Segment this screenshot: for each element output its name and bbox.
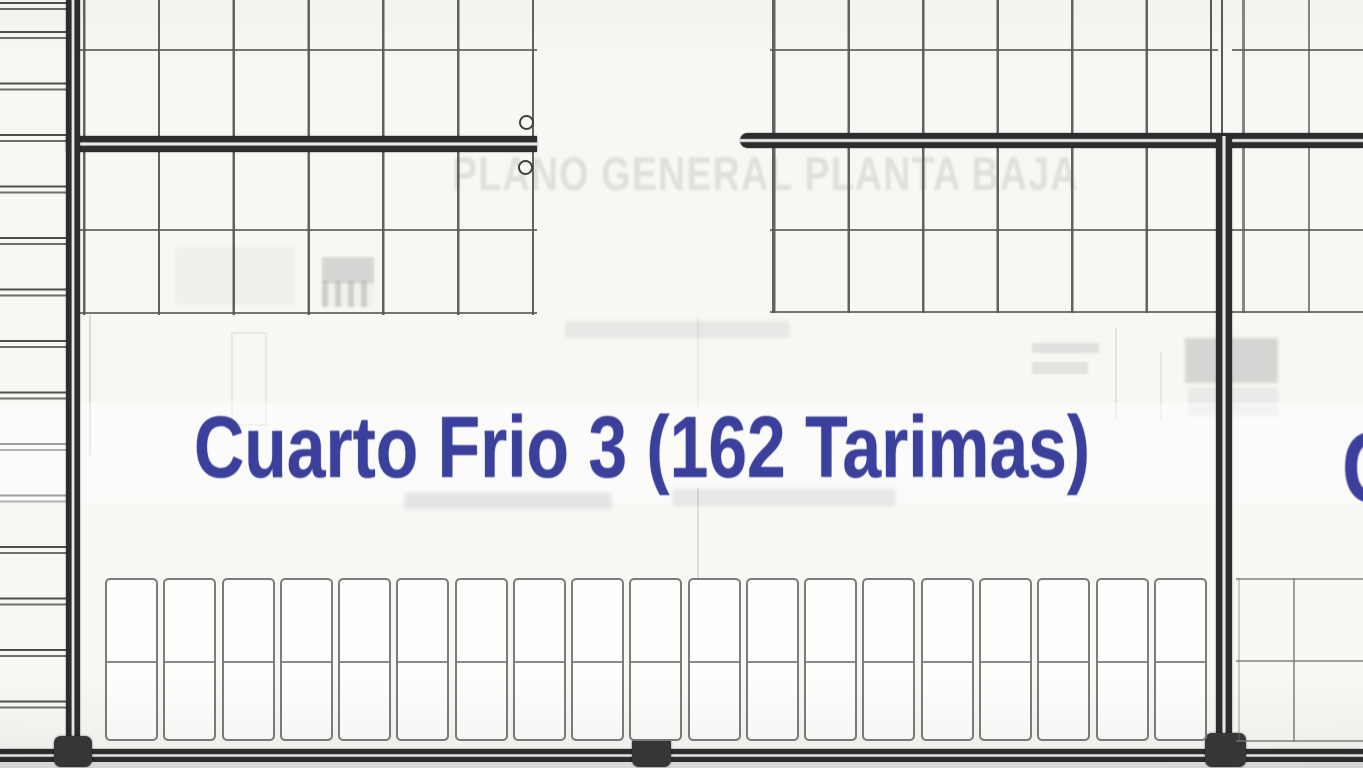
ghost-gray-block-2 — [1188, 387, 1278, 416]
pallet-cell — [629, 578, 682, 741]
ghost-line — [1160, 352, 1162, 420]
pallet-rack-top-right — [770, 0, 1218, 313]
pallet-cell — [746, 578, 799, 741]
ghost-text-small-1 — [1032, 343, 1099, 353]
rack-shelf-line — [1236, 660, 1363, 662]
door-hinge-marker-bottom — [518, 160, 533, 175]
pallet-rack-far-right — [1232, 0, 1363, 313]
pallet-cell — [1096, 578, 1149, 741]
rack-shelf-line — [770, 49, 1218, 51]
adjacent-room-partial-label: C — [1342, 411, 1363, 526]
ghost-text-mid — [565, 321, 790, 338]
rack-shelf-line — [80, 229, 537, 231]
left-rack-strip — [0, 0, 66, 750]
rack-shelf-line — [1236, 578, 1363, 580]
pallet-cell — [513, 578, 566, 741]
ghost-line — [697, 318, 699, 408]
wall-left — [66, 0, 80, 756]
rack-vertical-lines — [1232, 0, 1363, 313]
rack-vertical-line — [1238, 578, 1240, 742]
rack-vertical-lines — [770, 0, 1218, 313]
room-label: Cuarto Frio 3 (162 Tarimas) — [194, 398, 1090, 498]
rack-vertical-line — [1293, 578, 1295, 742]
ghost-line — [89, 315, 91, 455]
rack-bottom-edge — [1232, 311, 1363, 313]
ghost-text-small-2 — [1032, 362, 1088, 374]
pallet-cell — [396, 578, 449, 741]
pallet-cell — [921, 578, 974, 741]
rack-vertical-lines — [80, 0, 537, 315]
rack-bottom-edge — [80, 312, 537, 314]
pallet-cell — [455, 578, 508, 741]
rack-bottom-edge — [1236, 740, 1363, 742]
rack-shelf-line — [1232, 49, 1363, 51]
rack-bottom-edge — [770, 311, 1218, 313]
pallet-row-bottom-left — [105, 578, 1207, 741]
pallet-cell — [688, 578, 741, 741]
pallet-cell — [280, 578, 333, 741]
pallet-cell — [105, 578, 158, 741]
wall-top-right — [740, 133, 1363, 148]
pallet-cell — [1154, 578, 1207, 741]
pallet-cell — [979, 578, 1032, 741]
pallet-cell — [862, 578, 915, 741]
rack-shelf-line — [1232, 229, 1363, 231]
column-bottom-left — [54, 736, 92, 767]
pallet-cell — [163, 578, 216, 741]
wall-right — [1216, 136, 1232, 756]
pallet-cell — [571, 578, 624, 741]
floor-plan-canvas: PLANO GENERAL PLANTA BAJA Cuarto Frio 3 … — [0, 0, 1363, 768]
rack-shelf-line — [80, 49, 537, 51]
pallet-cell — [1037, 578, 1090, 741]
column-line-upper — [1210, 0, 1223, 136]
pallet-rack-top-left — [80, 0, 537, 315]
wall-bottom — [0, 749, 1363, 762]
pallet-cell — [804, 578, 857, 741]
pallet-grid-bottom-right — [1236, 578, 1363, 742]
ghost-line — [1115, 328, 1117, 420]
wall-top-left — [66, 136, 537, 152]
door-hinge-marker-top — [519, 115, 534, 130]
pallet-cell — [338, 578, 391, 741]
rack-shelf-line — [770, 229, 1218, 231]
ghost-line — [697, 488, 699, 578]
pallet-cell — [222, 578, 275, 741]
floor-edge-strip — [0, 762, 1363, 768]
